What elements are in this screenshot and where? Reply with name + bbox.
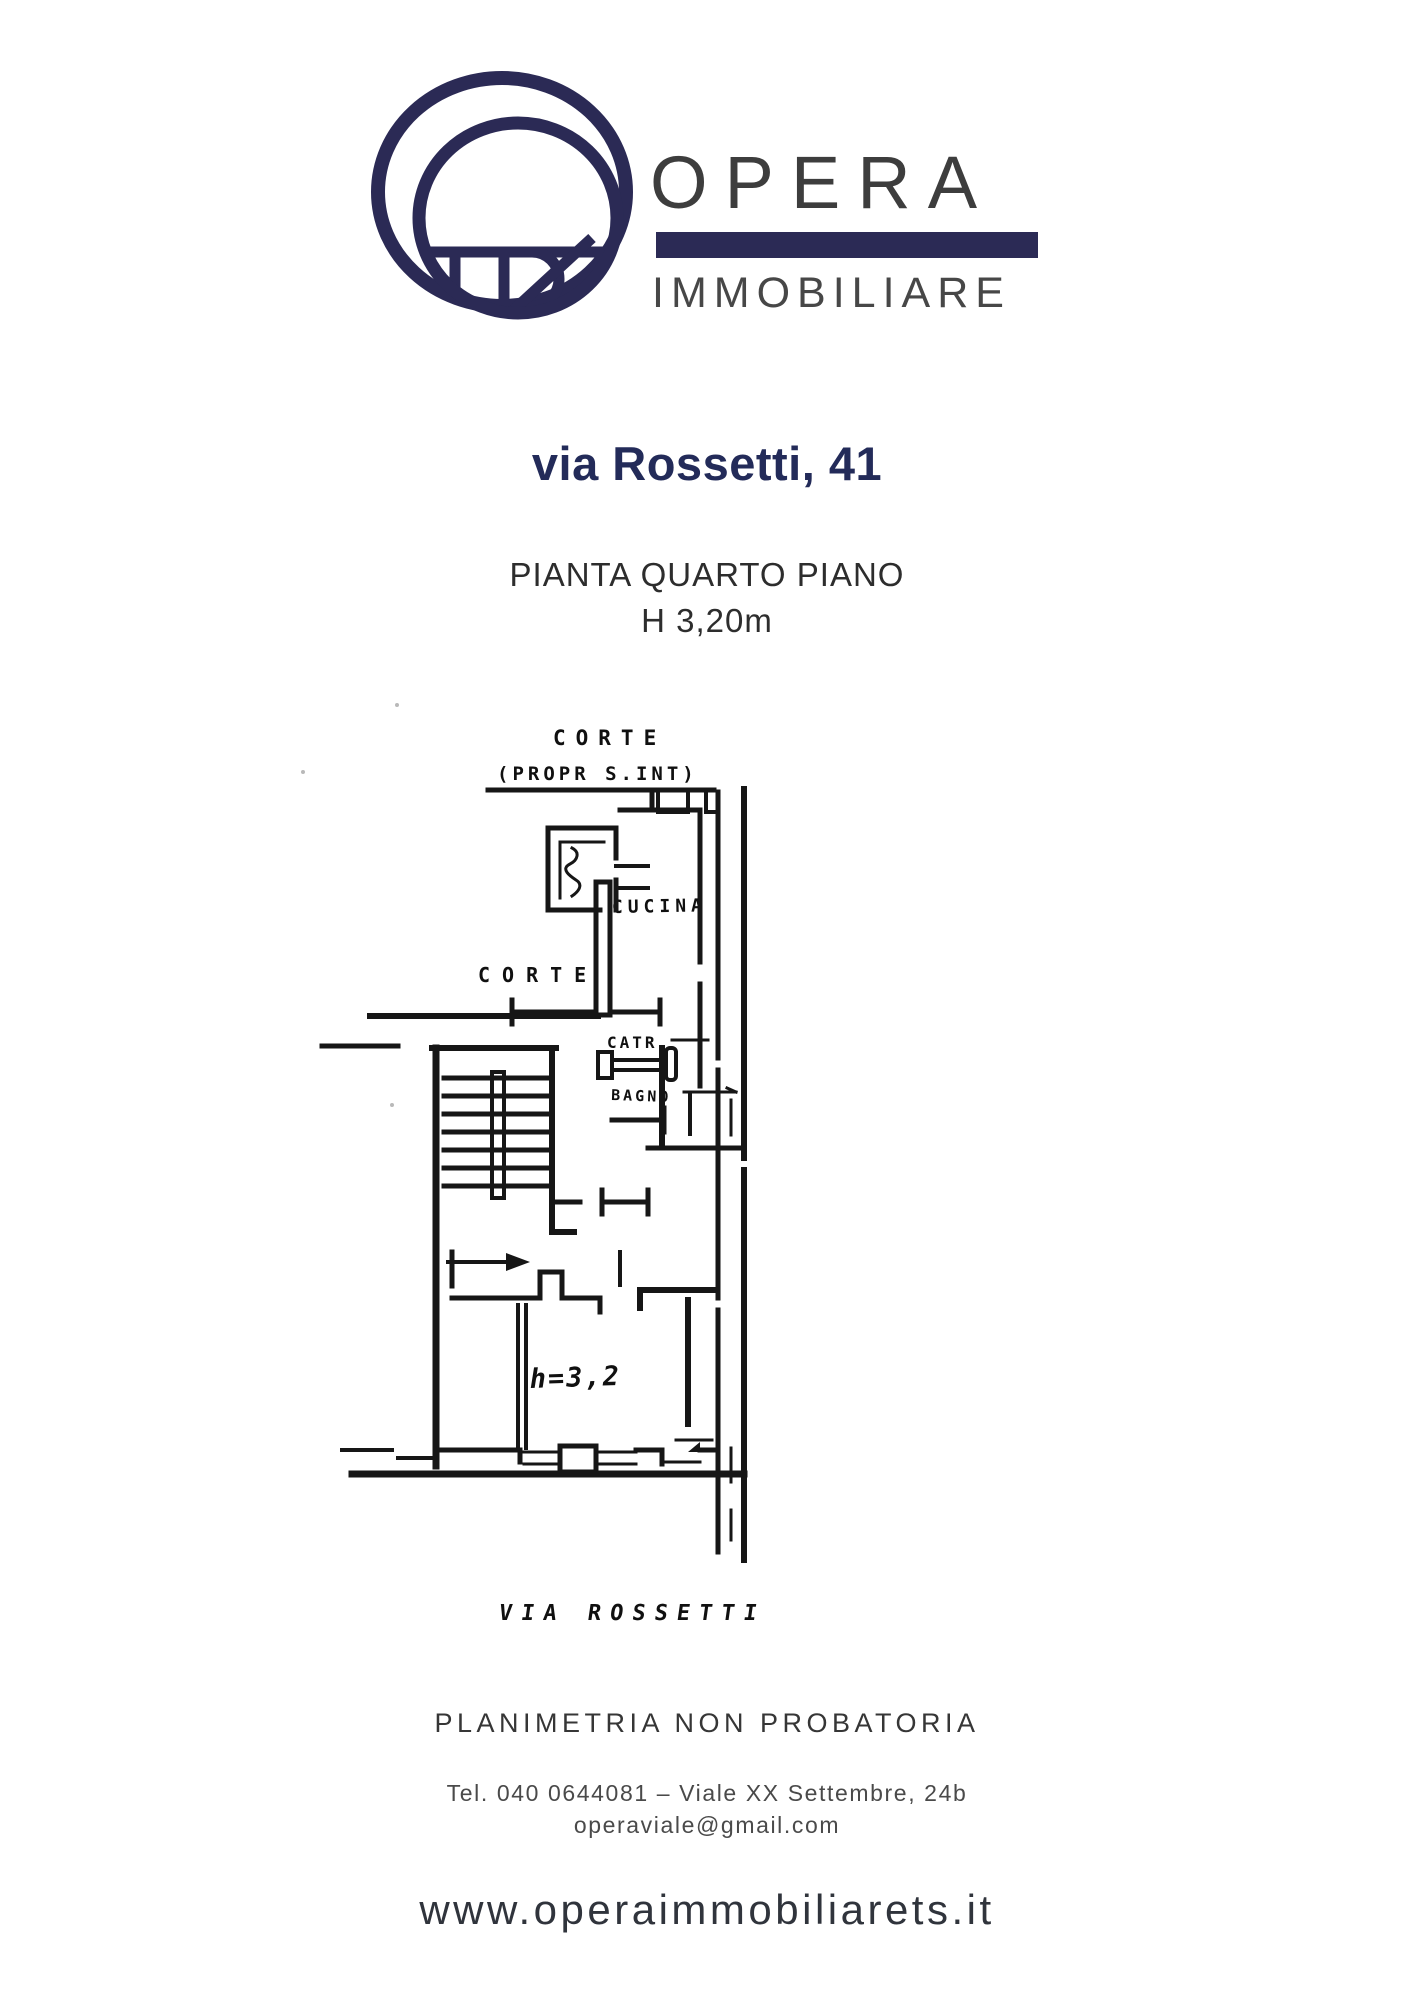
label-height-note: h=3,2 [529, 1361, 621, 1395]
label-kitchen: CUCINA [612, 895, 707, 918]
footer-email: operaviale@gmail.com [0, 1812, 1414, 1839]
label-courtyard-top-2: (PROPR S.INT) [497, 763, 698, 785]
footer-contact: Tel. 040 0644081 – Viale XX Settembre, 2… [0, 1780, 1414, 1807]
brand-subtitle: IMMOBILIARE [652, 272, 1011, 315]
scan-speck [395, 703, 399, 707]
flyer-page: OPERA IMMOBILIARE via Rossetti, 41 PIANT… [0, 0, 1414, 2000]
label-street: VIA ROSSETTI [497, 1600, 767, 1626]
scan-speck [390, 1103, 394, 1107]
label-courtyard-top: CORTE [553, 726, 666, 750]
listing-title: via Rossetti, 41 [0, 436, 1414, 491]
brand-name: OPERA [650, 146, 994, 220]
floorplan-labels: CORTE (PROPR S.INT) CUCINA CATR BAGNO CO… [478, 726, 768, 1626]
label-toilet: CATR [607, 1033, 658, 1052]
plan-caption-line2: H 3,20m [0, 602, 1414, 640]
brand-divider [656, 232, 1038, 258]
footer-website: www.operaimmobiliarets.it [0, 1886, 1414, 1934]
label-courtyard-left: CORTE [478, 963, 598, 987]
scan-speck [301, 770, 305, 774]
floor-plan: CORTE (PROPR S.INT) CUCINA CATR BAGNO CO… [300, 688, 860, 1640]
footer-disclaimer: PLANIMETRIA NON PROBATORIA [0, 1708, 1414, 1739]
plan-caption-line1: PIANTA QUARTO PIANO [0, 556, 1414, 594]
brand-logo-icon [360, 58, 650, 328]
